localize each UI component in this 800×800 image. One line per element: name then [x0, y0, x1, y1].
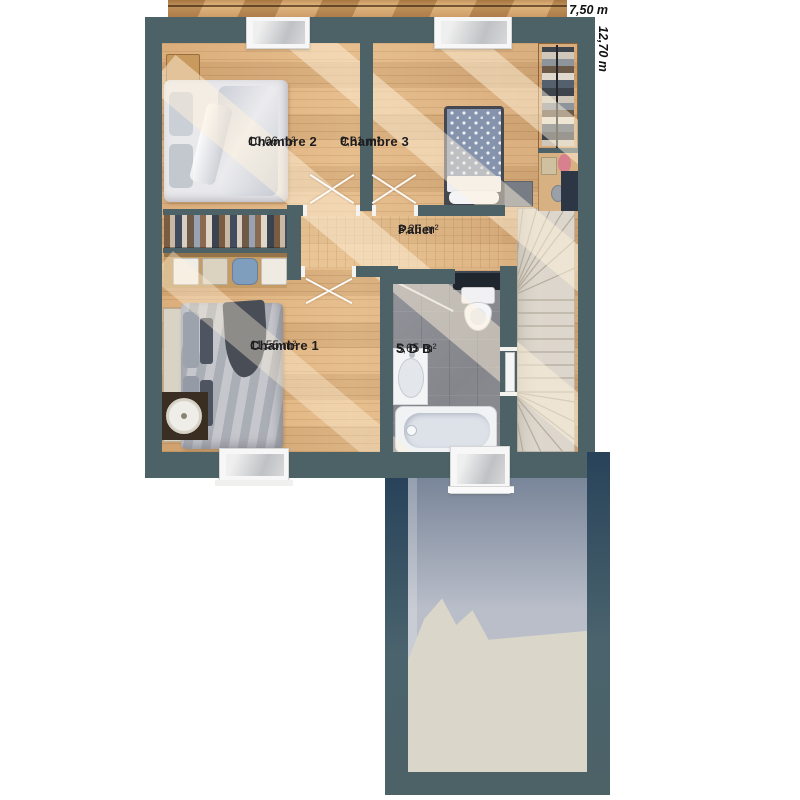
- palier-floor: [300, 216, 502, 268]
- round-side-table: [166, 398, 202, 434]
- rug: [561, 171, 578, 211]
- partition-wall: [360, 43, 373, 211]
- wardrobe-rail: [556, 45, 558, 148]
- garage-slab: [408, 478, 587, 772]
- dimension-width: 7,50 m: [548, 3, 608, 17]
- partition-wall: [393, 269, 455, 284]
- partition-wall: [380, 266, 393, 452]
- pillow: [449, 191, 499, 204]
- door-jamb: [500, 347, 517, 351]
- door-jamb: [356, 205, 360, 216]
- storage-box: [202, 258, 228, 285]
- exterior-wall-top: [145, 17, 595, 43]
- pillow: [169, 92, 193, 136]
- pillow: [183, 312, 199, 368]
- garage-wall-bottom: [385, 772, 610, 795]
- exterior-wall-bottom: [145, 452, 610, 478]
- door-jamb: [303, 205, 307, 216]
- window: [434, 14, 512, 49]
- door-jamb: [372, 205, 376, 216]
- bed-chambre2: [164, 80, 288, 202]
- door-jamb: [500, 392, 517, 396]
- blanket: [447, 176, 501, 192]
- sink-basin: [398, 358, 424, 398]
- floor-plan: Chambre 2 10,06 m² Chambre 3 9,31 m² Pal…: [0, 0, 800, 800]
- storage-box: [261, 258, 287, 285]
- door-jamb: [301, 266, 305, 277]
- vanity-box: [541, 157, 557, 175]
- storage-box: [173, 258, 199, 285]
- exterior-wall-left: [145, 17, 162, 478]
- roof-eave-line: [168, 5, 567, 7]
- hanging-clothes: [164, 215, 287, 248]
- partition-wall: [287, 205, 301, 280]
- sink-counter: [393, 348, 428, 405]
- window: [450, 446, 510, 494]
- door-jamb: [352, 266, 356, 277]
- garage-wall-left: [385, 478, 408, 795]
- sink-faucet: [409, 352, 415, 358]
- window: [219, 448, 289, 482]
- window: [246, 14, 310, 49]
- window-glass: [441, 21, 507, 44]
- garage-shadow: [408, 478, 587, 610]
- bathtub-faucet: [406, 425, 417, 436]
- dimension-depth: 12,70 m: [594, 26, 610, 96]
- window-glass: [457, 454, 505, 484]
- exterior-wall-right: [578, 17, 595, 478]
- roof-eave: [168, 0, 567, 17]
- storage-pouf: [232, 258, 258, 285]
- partition-wall: [418, 205, 505, 216]
- duvet: [218, 86, 278, 196]
- door-jamb: [414, 205, 418, 216]
- window-glass: [253, 21, 305, 44]
- staircase: [517, 208, 575, 452]
- bathroom-door-leaf: [505, 352, 515, 392]
- wardrobe: [538, 43, 578, 150]
- patterned-duvet: [447, 109, 501, 177]
- cushion: [200, 318, 213, 364]
- pillow: [169, 144, 193, 188]
- window-glass: [226, 454, 284, 476]
- window-sill: [215, 480, 293, 486]
- nightstand: [504, 181, 533, 207]
- window-sill: [448, 486, 514, 493]
- garage-wall-right: [587, 452, 610, 795]
